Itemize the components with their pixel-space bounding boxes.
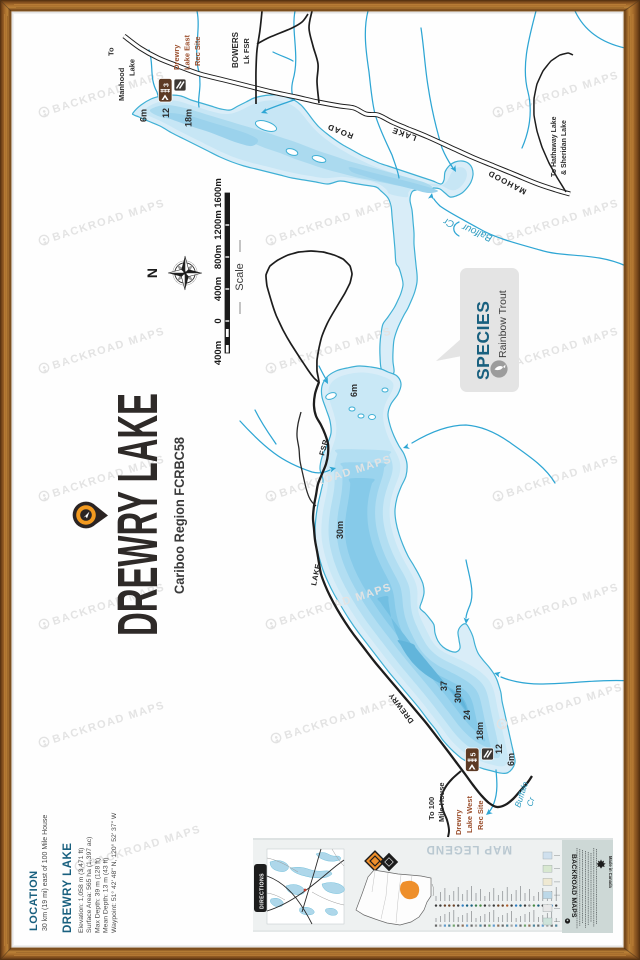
svg-text:To Hathaway Lake: To Hathaway Lake bbox=[551, 116, 558, 177]
svg-text:To: To bbox=[107, 47, 116, 56]
svg-text:24: 24 bbox=[462, 710, 472, 720]
svg-text:18m: 18m bbox=[475, 722, 485, 740]
svg-text:5: 5 bbox=[471, 753, 478, 757]
svg-text:Drewry: Drewry bbox=[454, 809, 463, 835]
svg-text:Lake East: Lake East bbox=[183, 34, 192, 70]
svg-text:1600m: 1600m bbox=[213, 178, 224, 208]
svg-text:Cariboo Region FCRBC58: Cariboo Region FCRBC58 bbox=[171, 437, 187, 594]
svg-text:DREWRY LAKE: DREWRY LAKE bbox=[62, 843, 74, 933]
svg-text:Mean Depth: 13 m (43 ft): Mean Depth: 13 m (43 ft) bbox=[103, 857, 110, 933]
svg-text:30m: 30m bbox=[335, 521, 345, 539]
svg-text:BACKROAD MAPS: BACKROAD MAPS bbox=[570, 854, 577, 918]
svg-text:6m: 6m bbox=[506, 753, 516, 766]
svg-text:0: 0 bbox=[213, 318, 224, 323]
svg-text:Drewry: Drewry bbox=[172, 44, 181, 70]
svg-text:SPECIES: SPECIES bbox=[473, 301, 493, 380]
svg-text:Elevation: 1,058 m (3,471 ft): Elevation: 1,058 m (3,471 ft) bbox=[78, 848, 85, 933]
svg-text:N: N bbox=[144, 268, 160, 278]
svg-text:400m: 400m bbox=[213, 341, 224, 365]
svg-text:800m: 800m bbox=[213, 245, 224, 269]
svg-text:& Sheridan Lake: & Sheridan Lake bbox=[561, 120, 568, 175]
svg-text:DREWRY LAKE: DREWRY LAKE bbox=[106, 393, 170, 636]
svg-text:Lk FSR: Lk FSR bbox=[242, 38, 251, 64]
svg-text:12: 12 bbox=[494, 744, 504, 754]
svg-text:37: 37 bbox=[439, 681, 449, 691]
svg-text:400m: 400m bbox=[213, 277, 224, 301]
svg-text:18m: 18m bbox=[184, 109, 194, 127]
svg-text:To 100: To 100 bbox=[427, 797, 436, 820]
svg-text:30 km (19 mi) east of 100 Mile: 30 km (19 mi) east of 100 Mile House bbox=[42, 815, 49, 931]
svg-text:30m: 30m bbox=[453, 685, 463, 703]
svg-text:Rec Site: Rec Site bbox=[476, 800, 485, 830]
svg-text:Made in Canada: Made in Canada bbox=[608, 856, 613, 889]
svg-text:DIRECTIONS: DIRECTIONS bbox=[260, 873, 266, 909]
svg-text:Scale: Scale bbox=[234, 263, 246, 291]
svg-text:LOCATION: LOCATION bbox=[28, 870, 40, 931]
svg-text:12: 12 bbox=[161, 108, 171, 118]
svg-text:1200m: 1200m bbox=[213, 210, 224, 240]
svg-text:Lake: Lake bbox=[128, 59, 137, 76]
svg-text:3: 3 bbox=[164, 83, 171, 87]
svg-text:Manhood: Manhood bbox=[117, 67, 126, 101]
svg-text:Waypoint: 51° 42' 48" N, 120°: Waypoint: 51° 42' 48" N, 120° 52' 37" W bbox=[110, 812, 118, 933]
svg-text:Rec Site: Rec Site bbox=[193, 36, 202, 66]
svg-text:Max Depth: 39 m (128 ft): Max Depth: 39 m (128 ft) bbox=[94, 858, 101, 933]
svg-text:6m: 6m bbox=[139, 109, 149, 122]
svg-text:Lake West: Lake West bbox=[465, 796, 474, 833]
svg-text:6m: 6m bbox=[349, 384, 359, 397]
svg-text:Rainbow Trout: Rainbow Trout bbox=[497, 290, 509, 358]
svg-text:BOWERS: BOWERS bbox=[231, 31, 240, 68]
svg-text:Surface Area: 565 ha (1,397 ac: Surface Area: 565 ha (1,397 ac) bbox=[86, 837, 93, 933]
svg-text:Mile House: Mile House bbox=[437, 782, 446, 822]
svg-text:MAP LEGEND: MAP LEGEND bbox=[426, 843, 512, 855]
